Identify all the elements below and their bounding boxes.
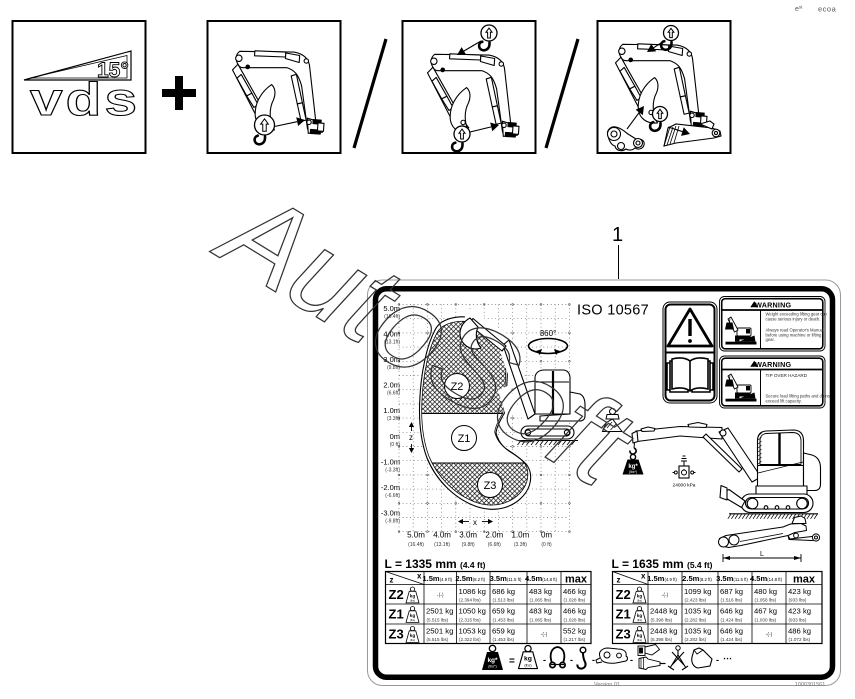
svg-text:(0 ft): (0 ft)	[390, 442, 401, 448]
svg-text:max: max	[793, 574, 816, 586]
svg-text:1.0m: 1.0m	[512, 531, 530, 540]
svg-text:exceed lift capacity.: exceed lift capacity.	[766, 398, 802, 403]
svg-text:1: 1	[612, 224, 623, 246]
svg-text:2448 kg: 2448 kg	[650, 627, 677, 636]
svg-text:x: x	[417, 572, 422, 581]
svg-text:(lbs): (lbs)	[524, 664, 532, 668]
svg-text:(0 ft): (0 ft)	[541, 542, 552, 548]
svg-text:(1.453 lbs): (1.453 lbs)	[493, 637, 515, 642]
svg-text:423 kg: 423 kg	[788, 587, 811, 596]
svg-text:466 kg: 466 kg	[563, 607, 586, 616]
svg-text:kg: kg	[637, 593, 643, 598]
svg-text:Z1: Z1	[616, 607, 631, 622]
svg-text:(2.394 lbs): (2.394 lbs)	[459, 598, 481, 603]
svg-text:kg: kg	[637, 633, 643, 638]
svg-text:659 kg: 659 kg	[492, 607, 515, 616]
svg-text:467 kg: 467 kg	[754, 607, 777, 616]
svg-text:(lbs*): (lbs*)	[629, 470, 637, 474]
svg-text:(1.028 lbs): (1.028 lbs)	[564, 618, 586, 623]
svg-text:-(-): -(-)	[766, 632, 773, 638]
svg-text:(lbs*): (lbs*)	[488, 665, 496, 669]
svg-text:-: -	[543, 655, 546, 665]
svg-text:kg: kg	[410, 593, 416, 598]
svg-text:1086 kg: 1086 kg	[459, 587, 486, 596]
svg-text:(2.282 lbs): (2.282 lbs)	[685, 618, 707, 623]
svg-text:(9.8ft): (9.8ft)	[462, 542, 475, 548]
svg-text:(-3.3ft): (-3.3ft)	[385, 467, 400, 473]
svg-text:(lbs): (lbs)	[410, 598, 415, 602]
svg-text:646 kg: 646 kg	[720, 607, 743, 616]
svg-text:Z3: Z3	[484, 480, 497, 492]
svg-text:-1.0m: -1.0m	[381, 457, 400, 466]
svg-text:(1.424 lbs): (1.424 lbs)	[721, 618, 743, 623]
svg-text:-(-): -(-)	[541, 632, 548, 638]
svg-text:(13.1ft): (13.1ft)	[434, 542, 450, 548]
svg-text:L = 1335 mm (4.4 ft): L = 1335 mm (4.4 ft)	[385, 557, 486, 571]
svg-text:vds: vds	[30, 74, 140, 126]
svg-text:(lbs): (lbs)	[637, 598, 642, 602]
svg-text:L = 1635 mm (5.4 ft): L = 1635 mm (5.4 ft)	[612, 557, 713, 571]
svg-text:1050 kg: 1050 kg	[459, 607, 486, 616]
svg-text:2501 kg: 2501 kg	[426, 627, 453, 636]
svg-text:Version 01: Version 01	[594, 682, 620, 688]
svg-text:(1.030 lbs): (1.030 lbs)	[755, 618, 777, 623]
svg-text:(1.513 lbs): (1.513 lbs)	[493, 598, 515, 603]
svg-text:1.0m: 1.0m	[383, 406, 400, 415]
svg-text:(1.065 lbs): (1.065 lbs)	[530, 618, 552, 623]
svg-text:483 kg: 483 kg	[529, 587, 552, 596]
svg-text:686 kg: 686 kg	[492, 587, 515, 596]
svg-text:5.0m: 5.0m	[407, 531, 425, 540]
svg-text:552 kg: 552 kg	[563, 627, 586, 636]
svg-text:x: x	[473, 518, 477, 527]
svg-text:Z3: Z3	[389, 626, 404, 641]
svg-text:=: =	[509, 656, 515, 667]
svg-text:2501 kg: 2501 kg	[426, 607, 453, 616]
svg-text:L: L	[760, 551, 764, 558]
svg-text:(lbs): (lbs)	[637, 618, 642, 622]
svg-text:(2.423 lbs): (2.423 lbs)	[685, 598, 707, 603]
svg-text:1053 kg: 1053 kg	[459, 627, 486, 636]
svg-text:Z1: Z1	[389, 607, 404, 622]
svg-text:(lbs): (lbs)	[637, 638, 642, 642]
svg-text:24000 kPa: 24000 kPa	[673, 483, 696, 489]
svg-text:max: max	[565, 574, 588, 586]
svg-text:(933 lbs): (933 lbs)	[789, 618, 807, 623]
svg-text:(1.516 lbs): (1.516 lbs)	[721, 598, 743, 603]
svg-text:kg: kg	[410, 613, 416, 618]
svg-text:-2.0m: -2.0m	[381, 483, 400, 492]
svg-text:423 kg: 423 kg	[788, 607, 811, 616]
svg-text:-(-): -(-)	[437, 592, 444, 598]
svg-text:(-6.6ft): (-6.6ft)	[385, 493, 400, 499]
svg-text:(2.322 lbs): (2.322 lbs)	[459, 637, 481, 642]
svg-text:(1.058 lbs): (1.058 lbs)	[755, 598, 777, 603]
svg-text:(5.515 lbs): (5.515 lbs)	[427, 618, 449, 623]
svg-text:1000301561: 1000301561	[795, 682, 826, 688]
svg-text:(16.4ft): (16.4ft)	[408, 542, 424, 548]
svg-text:-: -	[592, 655, 595, 665]
svg-text:4.0m: 4.0m	[433, 531, 451, 540]
svg-text:646 kg: 646 kg	[720, 627, 743, 636]
svg-text:(933 lbs): (933 lbs)	[789, 598, 807, 603]
svg-text:2.0m: 2.0m	[485, 531, 503, 540]
svg-text:0m: 0m	[390, 432, 400, 441]
svg-text:ISO 10567: ISO 10567	[577, 303, 649, 319]
svg-text:466 kg: 466 kg	[563, 587, 586, 596]
svg-text:659 kg: 659 kg	[492, 627, 515, 636]
svg-text:1035 kg: 1035 kg	[684, 607, 711, 616]
svg-text:(1.065 lbs): (1.065 lbs)	[530, 598, 552, 603]
svg-text:2448 kg: 2448 kg	[650, 607, 677, 616]
svg-text:(-9.8ft): (-9.8ft)	[385, 519, 400, 525]
svg-text:z: z	[617, 576, 621, 585]
svg-text:(1.453 lbs): (1.453 lbs)	[493, 618, 515, 623]
svg-text:WARNING: WARNING	[755, 300, 791, 309]
svg-text:Z3: Z3	[616, 626, 631, 641]
svg-text:kg: kg	[524, 656, 532, 663]
svg-text:(lbs): (lbs)	[410, 638, 415, 642]
svg-text:x: x	[641, 572, 646, 581]
svg-text:z: z	[390, 576, 394, 585]
svg-text:Z2: Z2	[389, 587, 404, 602]
svg-text:1099 kg: 1099 kg	[684, 587, 711, 596]
svg-text:z: z	[409, 433, 413, 442]
svg-text:-(-): -(-)	[662, 592, 669, 598]
svg-text:(3.3ft): (3.3ft)	[387, 416, 400, 422]
svg-text:3.0m: 3.0m	[459, 531, 477, 540]
svg-text:483 kg: 483 kg	[529, 607, 552, 616]
svg-text:(1.217 lbs): (1.217 lbs)	[564, 637, 586, 642]
svg-text:kg*: kg*	[487, 657, 498, 664]
svg-text:-: -	[570, 655, 573, 665]
svg-text:gear.: gear.	[766, 337, 775, 342]
svg-text:WARNING: WARNING	[755, 360, 791, 369]
svg-text:-: -	[630, 655, 633, 665]
svg-text:(3.3ft): (3.3ft)	[514, 542, 527, 548]
svg-text:(2.315 lbs): (2.315 lbs)	[459, 618, 481, 623]
svg-text:486 kg: 486 kg	[788, 627, 811, 636]
svg-text:kg: kg	[410, 633, 416, 638]
svg-text:(5.398 lbs): (5.398 lbs)	[651, 618, 673, 623]
svg-text:⋯: ⋯	[723, 653, 732, 663]
svg-text:Z2: Z2	[616, 587, 631, 602]
svg-text:1035 kg: 1035 kg	[684, 627, 711, 636]
svg-text:TIP OVER HAZARD: TIP OVER HAZARD	[766, 373, 808, 378]
svg-text:(1.424 lbs): (1.424 lbs)	[721, 637, 743, 642]
svg-text:(5.398 lbs): (5.398 lbs)	[651, 637, 673, 642]
svg-text:(1.028 lbs): (1.028 lbs)	[564, 598, 586, 603]
svg-text:480 kg: 480 kg	[754, 587, 777, 596]
svg-text:ecoa: ecoa	[818, 5, 837, 14]
svg-text:-3.0m: -3.0m	[381, 509, 400, 518]
svg-text:687 kg: 687 kg	[720, 587, 743, 596]
svg-text:(1.072 lbs): (1.072 lbs)	[789, 637, 811, 642]
svg-text:-: -	[716, 655, 719, 665]
svg-text:kg: kg	[637, 613, 643, 618]
svg-text:cause serious injury or death.: cause serious injury or death.	[766, 316, 821, 321]
svg-text:(lbs): (lbs)	[410, 618, 415, 622]
svg-text:(5.515 lbs): (5.515 lbs)	[427, 637, 449, 642]
svg-text:(6.6ft): (6.6ft)	[488, 542, 501, 548]
svg-text:(2.282 lbs): (2.282 lbs)	[685, 637, 707, 642]
svg-text:0m: 0m	[541, 531, 552, 540]
